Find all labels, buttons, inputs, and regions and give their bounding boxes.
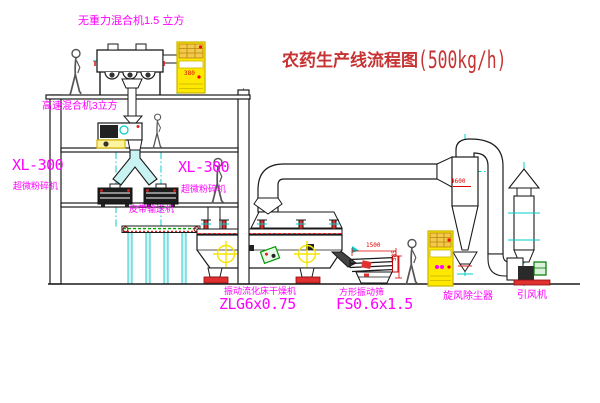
gravity-mixer-drawing	[93, 44, 182, 116]
y-splitter-duct	[113, 150, 157, 185]
process-flow-diagram: 农药生产线流程图(500kg/h) 无重力混合机1.5 立方 高速混合机3立方 …	[0, 0, 600, 403]
person-figure	[212, 159, 223, 204]
exhaust-stack-drawing	[508, 169, 540, 262]
high-speed-mixer-drawing	[97, 116, 142, 150]
person-figure	[70, 50, 81, 95]
person-figure	[406, 240, 417, 285]
pulverizer-right-drawing	[144, 184, 178, 207]
chute-arrow	[352, 246, 359, 253]
exhaust-duct-drawing	[258, 157, 452, 212]
control-cabinet-2	[428, 231, 453, 286]
vibrating-screen-drawing	[350, 248, 402, 283]
person-figure	[153, 114, 162, 148]
control-cabinet-1	[177, 42, 205, 93]
pulverizer-left-drawing	[98, 184, 132, 207]
diagram-drawing	[0, 0, 600, 403]
belt-conveyor-drawing	[122, 226, 200, 284]
cyclone-drawing	[452, 139, 509, 276]
